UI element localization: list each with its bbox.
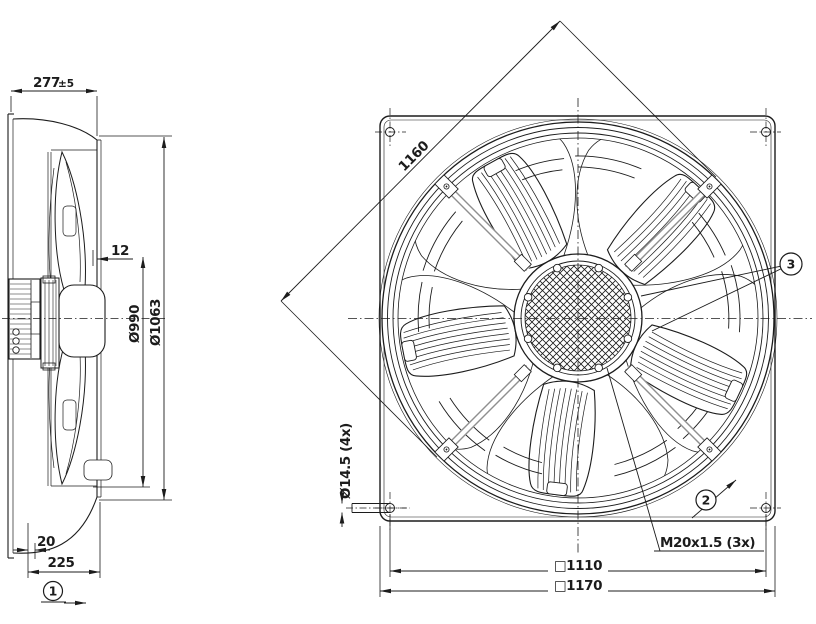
dim-housing-diameter-value: Ø1063 [148,299,164,346]
dim-depth-tolerance: ±5 [58,78,74,90]
airflow-callout: 1 [41,582,86,604]
dim-depth-value: 277 [33,75,60,91]
fan-dimension-drawing: 277 ±5 12 Ø990 Ø1063 20 [0,0,816,624]
cable-gland-icon [13,338,19,344]
motor-side [9,276,105,370]
dim-flange-offset-value: 20 [37,534,55,550]
side-view: 277 ±5 12 Ø990 Ø1063 20 [2,75,172,603]
label-cable-gland-value: M20x1.5 (3x) [660,535,755,551]
technical-drawing-page: 277 ±5 12 Ø990 Ø1063 20 [0,0,816,624]
cable-gland-icon [13,329,19,335]
front-view: 1160 Ø14.5 (4x) 3 2 M [281,21,812,597]
dim-corner-hole-value: Ø14.5 (4x) [338,423,354,499]
dim-depth: 277 ±5 [11,75,97,136]
dim-impeller-diameter-value: Ø990 [127,305,143,343]
dim-frame-size-value: □1170 [554,578,602,594]
dim-tip-gap: 12 [93,243,133,266]
dim-tip-gap-value: 12 [111,243,129,259]
dim-hole-pitch-value: □1110 [554,558,602,574]
cable-gland-icon [13,347,19,353]
dim-mount-depth-value: 225 [48,555,75,571]
callout-3-number: 3 [787,257,796,272]
hub-side [59,285,105,357]
callout-2-number: 2 [702,493,711,508]
airflow-callout-number: 1 [49,584,58,599]
